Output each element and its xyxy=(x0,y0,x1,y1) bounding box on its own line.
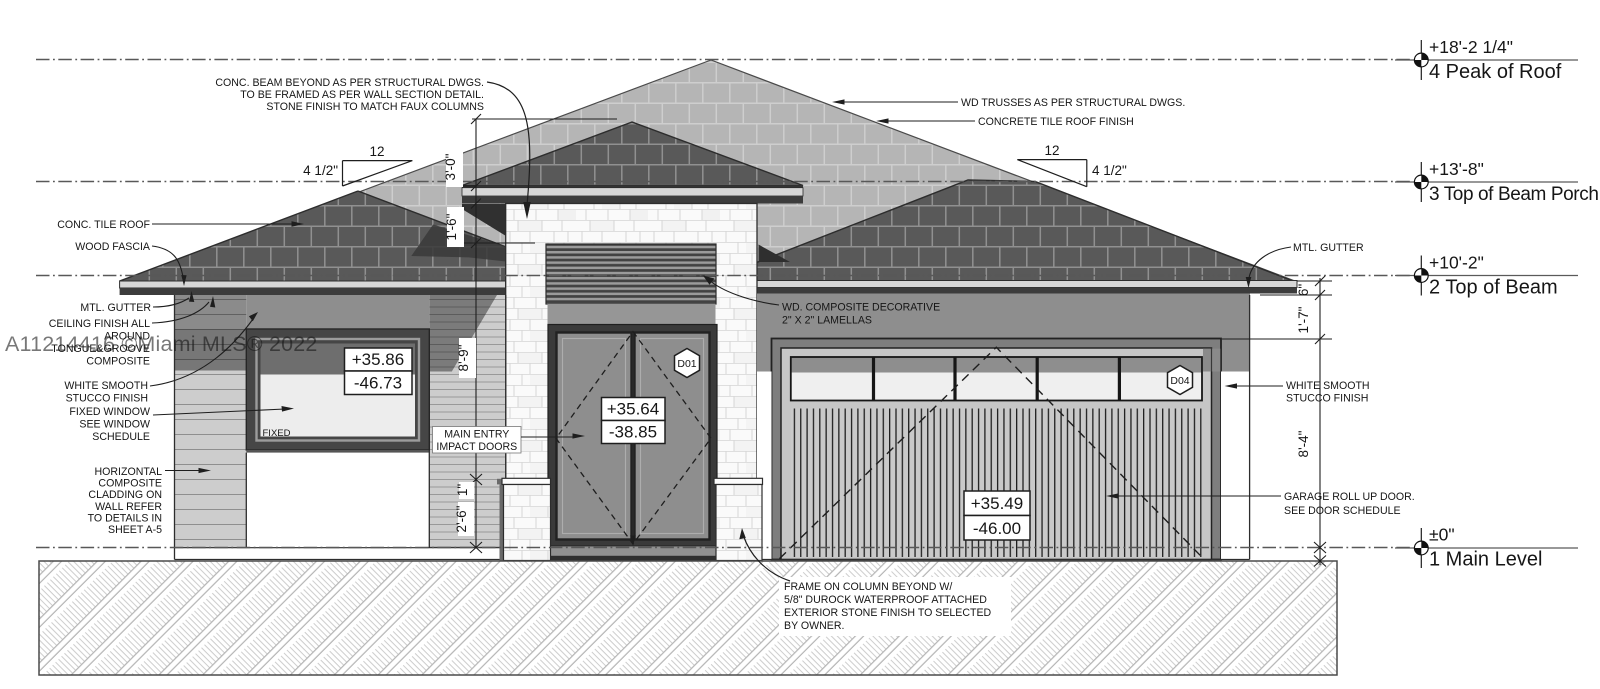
svg-text:5/8" DUROCK WATERPROOF ATTACHE: 5/8" DUROCK WATERPROOF ATTACHED xyxy=(784,594,987,606)
svg-text:CLADDING ON: CLADDING ON xyxy=(88,489,162,501)
svg-text:MAIN ENTRY: MAIN ENTRY xyxy=(444,429,509,441)
svg-text:+35.64: +35.64 xyxy=(607,400,659,419)
svg-text:3'-0": 3'-0" xyxy=(443,153,458,180)
svg-text:SCHEDULE: SCHEDULE xyxy=(92,431,150,443)
svg-text:MTL. GUTTER: MTL. GUTTER xyxy=(80,302,151,314)
svg-text:EXTERIOR STONE FINISH TO SELEC: EXTERIOR STONE FINISH TO SELECTED xyxy=(784,607,992,619)
svg-text:FIXED WINDOW: FIXED WINDOW xyxy=(69,406,150,418)
svg-text:COMPOSITE: COMPOSITE xyxy=(86,356,150,368)
svg-text:±0": ±0" xyxy=(1429,525,1455,545)
svg-text:4 1/2": 4 1/2" xyxy=(303,163,338,178)
svg-text:+35.49: +35.49 xyxy=(971,494,1023,513)
svg-text:STUCCO FINISH: STUCCO FINISH xyxy=(1286,393,1368,405)
svg-text:A11214416 ©Miami MLS® 2022: A11214416 ©Miami MLS® 2022 xyxy=(5,332,318,356)
svg-text:CEILING FINISH ALL: CEILING FINISH ALL xyxy=(49,318,150,330)
svg-text:2" X 2" LAMELLAS: 2" X 2" LAMELLAS xyxy=(782,315,872,327)
svg-text:WD TRUSSES AS PER STRUCTURAL D: WD TRUSSES AS PER STRUCTURAL DWGS. xyxy=(961,97,1185,109)
svg-text:+10'-2": +10'-2" xyxy=(1429,253,1484,273)
svg-text:MTL. GUTTER: MTL. GUTTER xyxy=(1293,242,1364,254)
svg-text:WD. COMPOSITE DECORATIVE: WD. COMPOSITE DECORATIVE xyxy=(782,302,940,314)
svg-text:12: 12 xyxy=(1044,143,1059,158)
svg-text:GARAGE ROLL UP DOOR.: GARAGE ROLL UP DOOR. xyxy=(1284,491,1415,503)
svg-text:COMPOSITE: COMPOSITE xyxy=(98,478,162,490)
svg-text:CONC. BEAM BEYOND AS PER STRUC: CONC. BEAM BEYOND AS PER STRUCTURAL DWGS… xyxy=(215,77,484,89)
svg-text:WOOD FASCIA: WOOD FASCIA xyxy=(75,241,151,253)
svg-text:1 Main Level: 1 Main Level xyxy=(1429,549,1542,571)
svg-text:1'-7": 1'-7" xyxy=(1296,306,1311,333)
svg-text:+18'-2 1/4": +18'-2 1/4" xyxy=(1429,37,1513,57)
svg-text:3 Top of Beam Porch: 3 Top of Beam Porch xyxy=(1429,184,1599,205)
svg-text:SEE DOOR SCHEDULE: SEE DOOR SCHEDULE xyxy=(1284,505,1401,517)
svg-text:IMPACT DOORS: IMPACT DOORS xyxy=(436,441,517,453)
svg-text:1": 1" xyxy=(455,484,470,497)
svg-text:8'-9": 8'-9" xyxy=(456,344,471,371)
svg-text:TO DETAILS IN: TO DETAILS IN xyxy=(88,512,162,524)
svg-text:D01: D01 xyxy=(677,358,696,370)
svg-text:HORIZONTAL: HORIZONTAL xyxy=(95,466,163,478)
svg-text:FRAME ON COLUMN BEYOND W/: FRAME ON COLUMN BEYOND W/ xyxy=(784,581,952,593)
svg-text:WHITE SMOOTH: WHITE SMOOTH xyxy=(64,380,148,392)
svg-text:-46.00: -46.00 xyxy=(973,519,1021,538)
svg-text:WHITE SMOOTH: WHITE SMOOTH xyxy=(1286,380,1370,392)
svg-text:-46.73: -46.73 xyxy=(354,374,402,393)
svg-text:2 Top of Beam: 2 Top of Beam xyxy=(1429,277,1558,299)
svg-text:1'-6": 1'-6" xyxy=(444,213,459,240)
svg-text:6": 6" xyxy=(1296,284,1311,297)
svg-text:12: 12 xyxy=(369,144,384,159)
svg-text:FIXED: FIXED xyxy=(263,428,291,439)
svg-text:4 Peak of Roof: 4 Peak of Roof xyxy=(1429,61,1562,83)
svg-text:STUCCO FINISH: STUCCO FINISH xyxy=(66,393,148,405)
svg-text:-38.85: -38.85 xyxy=(609,423,657,442)
svg-text:8'-4": 8'-4" xyxy=(1296,430,1311,457)
svg-text:WALL REFER: WALL REFER xyxy=(95,501,162,513)
svg-text:SEE WINDOW: SEE WINDOW xyxy=(79,419,150,431)
svg-text:D04: D04 xyxy=(1170,375,1189,387)
svg-text:2'-6": 2'-6" xyxy=(454,505,469,532)
svg-text:SHEET A-5: SHEET A-5 xyxy=(108,524,162,536)
svg-text:CONC. TILE ROOF: CONC. TILE ROOF xyxy=(57,219,150,231)
svg-text:+13'-8": +13'-8" xyxy=(1429,159,1484,179)
svg-text:STONE FINISH TO MATCH FAUX COL: STONE FINISH TO MATCH FAUX COLUMNS xyxy=(266,101,484,113)
svg-text:+35.86: +35.86 xyxy=(352,350,404,369)
svg-text:TO BE FRAMED AS PER WALL SECTI: TO BE FRAMED AS PER WALL SECTION DETAIL. xyxy=(240,89,484,101)
svg-text:BY OWNER.: BY OWNER. xyxy=(784,620,844,632)
svg-text:4 1/2": 4 1/2" xyxy=(1092,163,1127,178)
svg-text:CONCRETE TILE ROOF FINISH: CONCRETE TILE ROOF FINISH xyxy=(978,116,1134,128)
